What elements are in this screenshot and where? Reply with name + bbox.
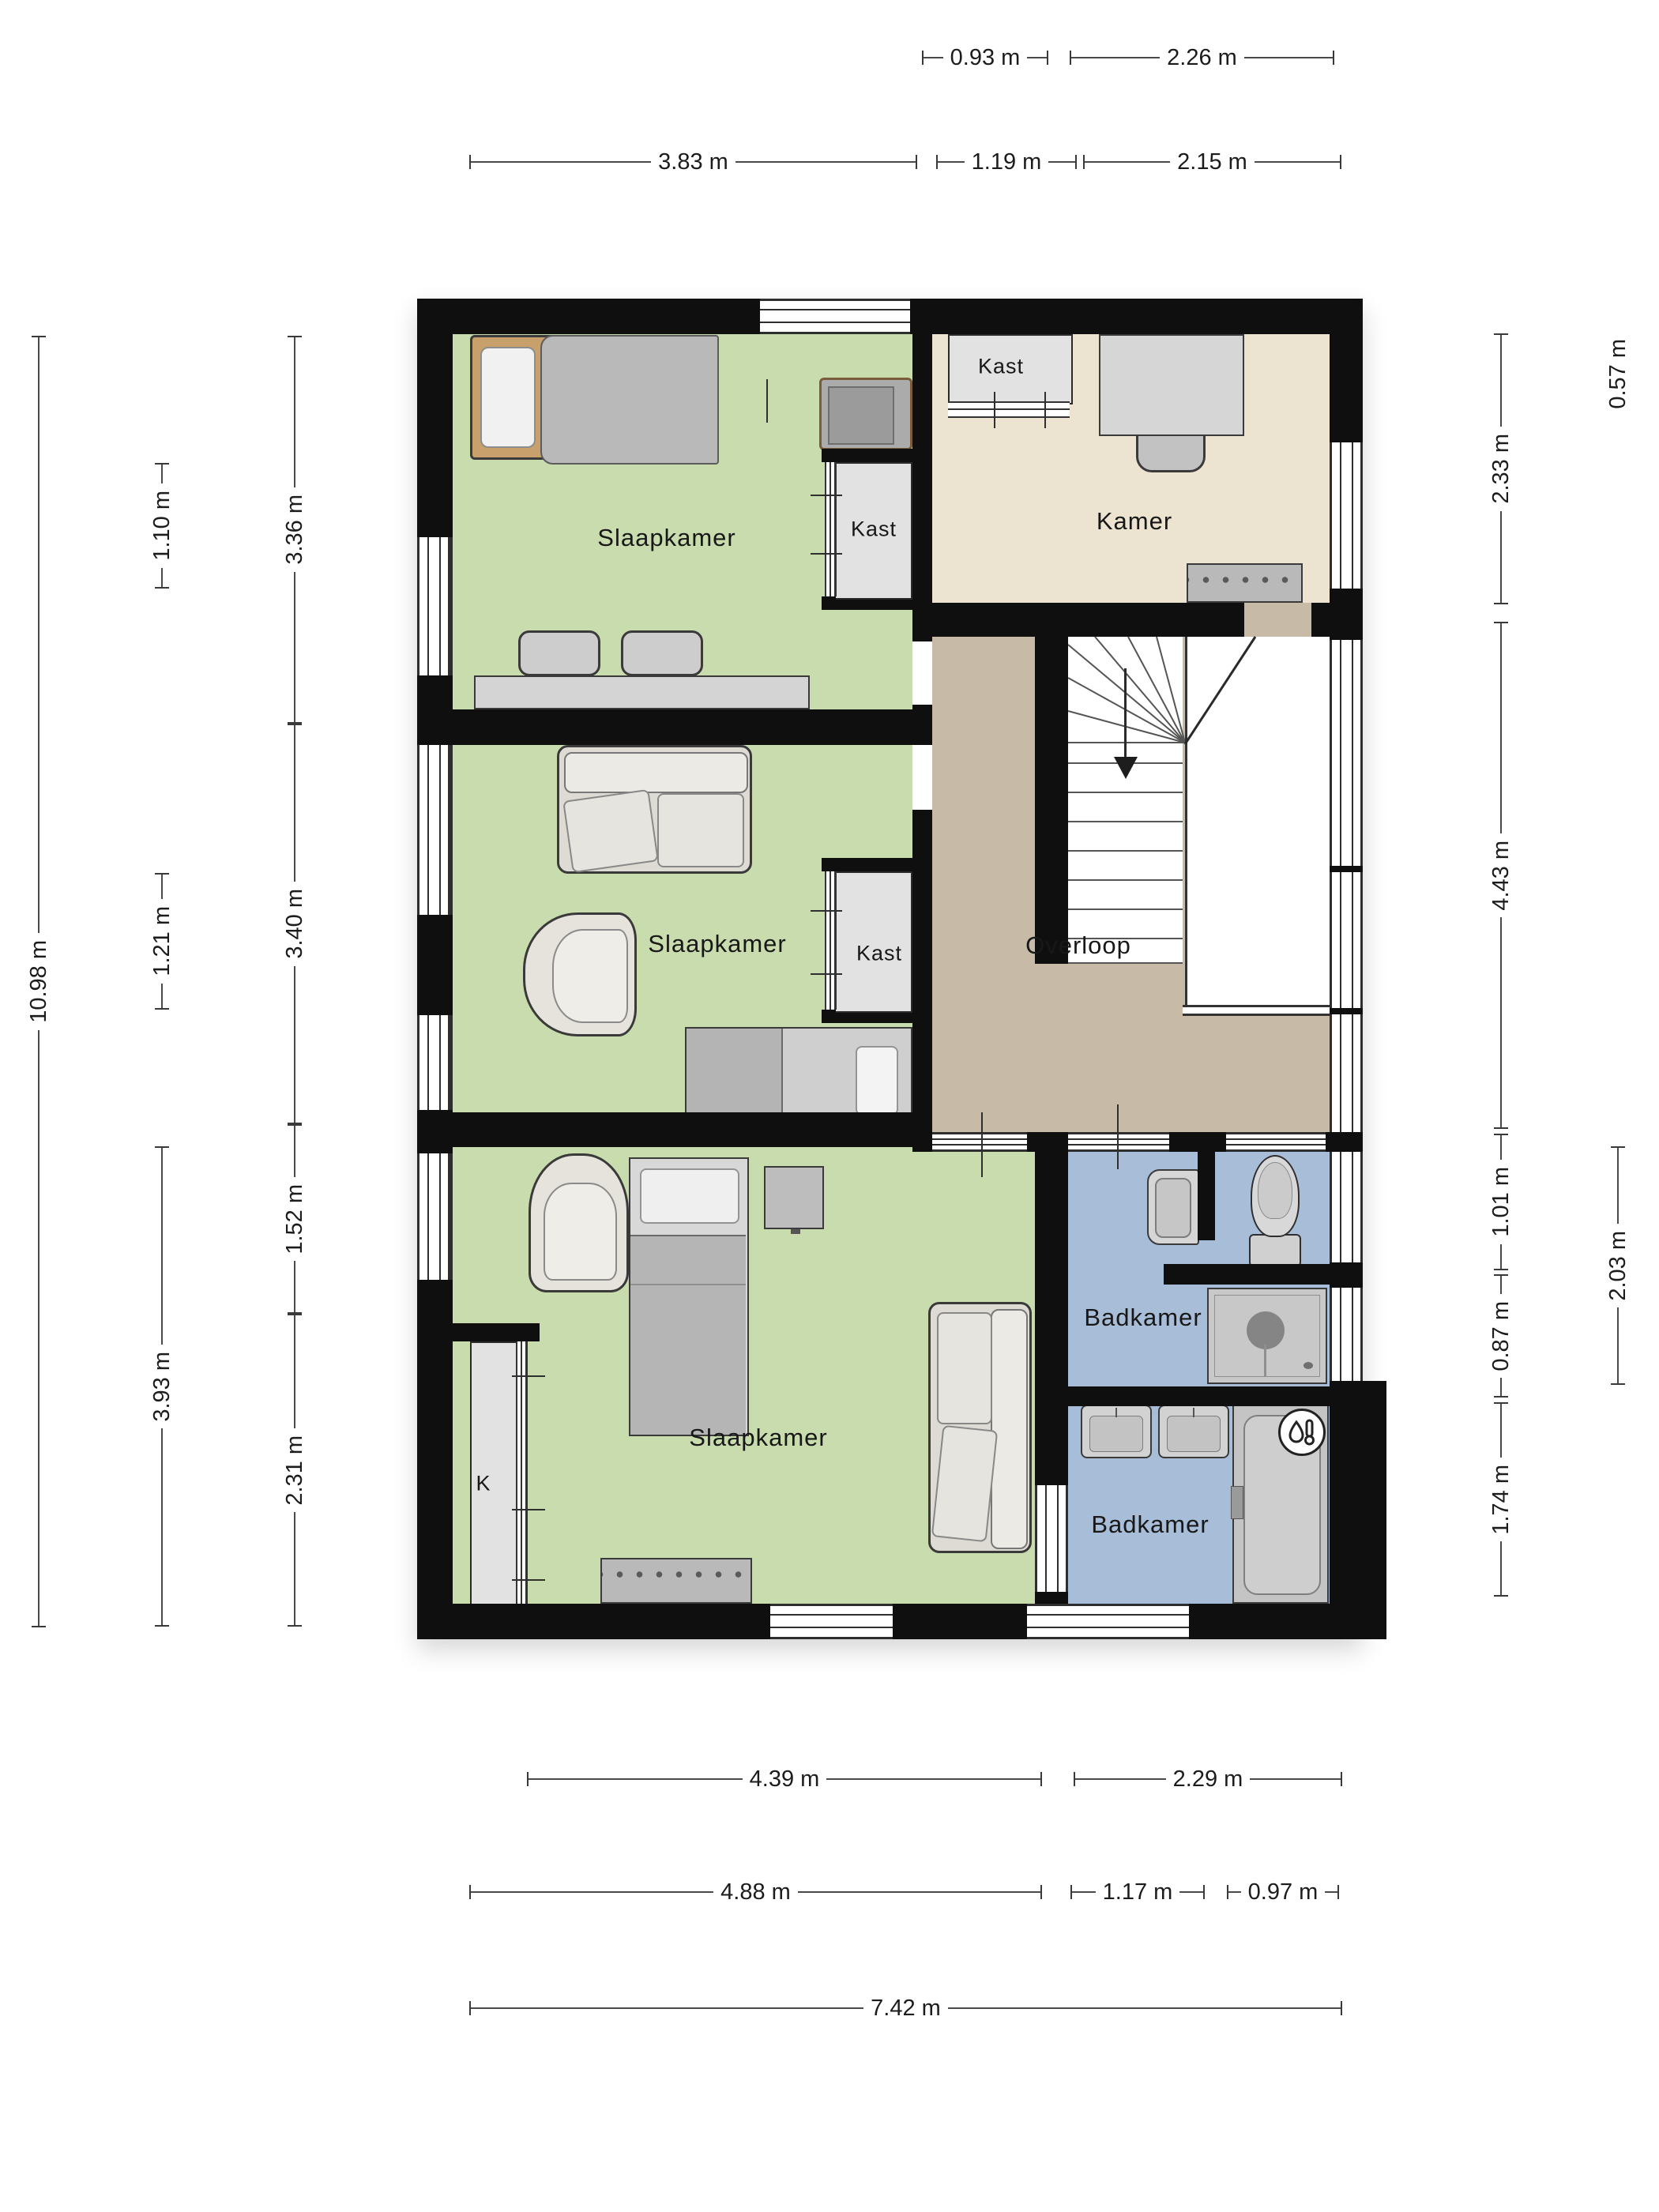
closet-k-sliding-door xyxy=(516,1341,528,1604)
bed-pillow xyxy=(856,1046,898,1115)
stair-walkline xyxy=(1124,668,1127,757)
dim-right-0.57: 0.57 m xyxy=(1606,332,1630,419)
dim-bottom-0.97: 0.97 m xyxy=(1227,1880,1339,1904)
room-label-kamer: Kamer xyxy=(1097,507,1172,536)
room-label-bedroom-middle: Slaapkamer xyxy=(648,930,786,958)
stair-down-arrow-icon xyxy=(1114,757,1138,779)
desk-chair-left xyxy=(518,630,600,676)
bed-bedroom-bottom xyxy=(629,1157,749,1436)
closet-top-wall xyxy=(822,449,912,462)
sofa-bedroom-middle xyxy=(557,745,752,874)
closet-top-wall xyxy=(822,858,912,871)
dim-bottom-4.39: 4.39 m xyxy=(527,1767,1042,1791)
armchair-bedroom-middle xyxy=(523,912,637,1036)
sofa-seat-bottom xyxy=(931,1425,998,1543)
desk-bedroom-top xyxy=(474,675,810,709)
dim-left-1.21: 1.21 m xyxy=(150,873,174,1010)
dim-bottom-4.88: 4.88 m xyxy=(469,1880,1042,1904)
dim-left-2.31: 2.31 m xyxy=(283,1314,307,1627)
window-right-overloop xyxy=(1330,640,1363,1132)
dim-top-1.19: 1.19 m xyxy=(936,150,1077,174)
closet-label-bedroom-top: Kast xyxy=(851,517,897,542)
glass-band-bathroom-bottom-door xyxy=(1035,1485,1068,1592)
glass-band-bathroom-top xyxy=(1068,1132,1169,1152)
stair-cut-line xyxy=(1183,637,1262,747)
toilet-bowl xyxy=(1251,1155,1300,1237)
glass-band-toilet xyxy=(1226,1132,1326,1152)
window-left-wall-3 xyxy=(417,1015,453,1110)
dim-bottom-1.17: 1.17 m xyxy=(1070,1880,1205,1904)
radiator-kamer xyxy=(1187,563,1303,603)
sink-tap-icon xyxy=(1193,1408,1194,1417)
sink-basin xyxy=(1155,1178,1191,1238)
dim-right-4.43: 4.43 m xyxy=(1489,622,1513,1129)
bed-pillow xyxy=(640,1168,739,1224)
nursery-chair-cushion xyxy=(828,386,894,445)
window-right-shower xyxy=(1330,1288,1363,1381)
sink-tap-icon xyxy=(1115,1408,1117,1417)
glass-band-bedroom-bottom xyxy=(932,1132,1027,1152)
dim-right-1.01: 1.01 m xyxy=(1489,1134,1513,1270)
void-railing xyxy=(1183,1005,1330,1016)
desk-chair-right xyxy=(621,630,703,676)
side-table xyxy=(764,1166,824,1229)
window-right-kamer xyxy=(1330,442,1363,589)
desk-chair-kamer xyxy=(1136,436,1206,472)
dim-top-2.15: 2.15 m xyxy=(1083,150,1341,174)
thermostat-icon xyxy=(1278,1409,1326,1456)
dim-left-3.93: 3.93 m xyxy=(150,1146,174,1627)
window-left-wall-1 xyxy=(417,537,453,675)
bathtub-faucet-icon xyxy=(1231,1486,1243,1519)
closet-kamer-sliding-door xyxy=(948,401,1070,418)
dim-right-2.33: 2.33 m xyxy=(1489,333,1513,604)
window-bottom-wall-1 xyxy=(770,1604,893,1639)
room-label-overloop: Overloop xyxy=(1025,931,1131,960)
closet-label-bedroom-middle: Kast xyxy=(856,942,902,966)
room-label-bathroom-bottom: Badkamer xyxy=(1091,1510,1209,1539)
dim-left-1.10: 1.10 m xyxy=(150,463,174,589)
dim-bottom-2.29: 2.29 m xyxy=(1074,1767,1342,1791)
dim-right-0.87: 0.87 m xyxy=(1489,1274,1513,1398)
dim-left-3.36: 3.36 m xyxy=(283,336,307,724)
window-left-wall-2 xyxy=(417,745,453,915)
window-right-toilet xyxy=(1330,1152,1363,1262)
closet-k-top-wall xyxy=(451,1323,540,1341)
shower-tray xyxy=(1207,1288,1327,1384)
armchair-bedroom-bottom xyxy=(529,1153,629,1292)
dim-top-3.83: 3.83 m xyxy=(469,150,917,174)
closet-label-k: K xyxy=(476,1472,491,1496)
toilet-tank xyxy=(1249,1234,1301,1267)
dim-left-1.52: 1.52 m xyxy=(283,1124,307,1314)
bed-blanket xyxy=(630,1235,746,1435)
bed-pillow xyxy=(480,347,536,448)
bed-single-top xyxy=(470,335,715,460)
armchair-cushion xyxy=(544,1183,617,1281)
floorplan-page: { "rooms": { "bedroom_top": "Slaapkamer"… xyxy=(0,0,1659,2212)
dim-top-2.26: 2.26 m xyxy=(1070,46,1334,70)
radiator-bedroom-bottom xyxy=(600,1558,752,1604)
sofa-back-cushions xyxy=(991,1309,1028,1549)
sofa-bedroom-bottom xyxy=(928,1302,1032,1553)
shower-drain-icon xyxy=(1247,1311,1285,1349)
dim-bottom-7.42: 7.42 m xyxy=(469,1996,1342,2020)
closet-sliding-door xyxy=(825,871,837,1010)
bed-blanket xyxy=(540,335,719,465)
window-bottom-wall-2 xyxy=(1027,1604,1189,1639)
desk-kamer xyxy=(1099,334,1244,436)
room-label-bedroom-top: Slaapkamer xyxy=(597,524,735,552)
nursery-chair xyxy=(819,378,912,450)
dim-right-1.74: 1.74 m xyxy=(1489,1402,1513,1597)
dim-left-3.40: 3.40 m xyxy=(283,724,307,1124)
sofa-back-cushions xyxy=(564,752,748,793)
window-top-wall xyxy=(760,299,910,334)
window-left-wall-4 xyxy=(417,1153,453,1280)
sink-bathroom-top xyxy=(1147,1169,1199,1245)
room-label-bathroom-top: Badkamer xyxy=(1084,1303,1202,1332)
sofa-seat-top xyxy=(937,1312,992,1424)
armchair-cushion xyxy=(552,929,628,1023)
dim-right-2.03: 2.03 m xyxy=(1606,1146,1630,1385)
sink-right-bathroom-bottom xyxy=(1158,1405,1229,1458)
room-label-bedroom-bottom: Slaapkamer xyxy=(689,1424,827,1452)
sofa-seat-right xyxy=(657,793,744,867)
dim-top-0.93: 0.93 m xyxy=(922,46,1048,70)
closet-sliding-door xyxy=(825,462,837,596)
closet-label-kamer: Kast xyxy=(978,355,1024,379)
sofa-seat-left xyxy=(562,789,659,873)
sink-left-bathroom-bottom xyxy=(1081,1405,1152,1458)
dim-left-10.98: 10.98 m xyxy=(27,336,51,1627)
